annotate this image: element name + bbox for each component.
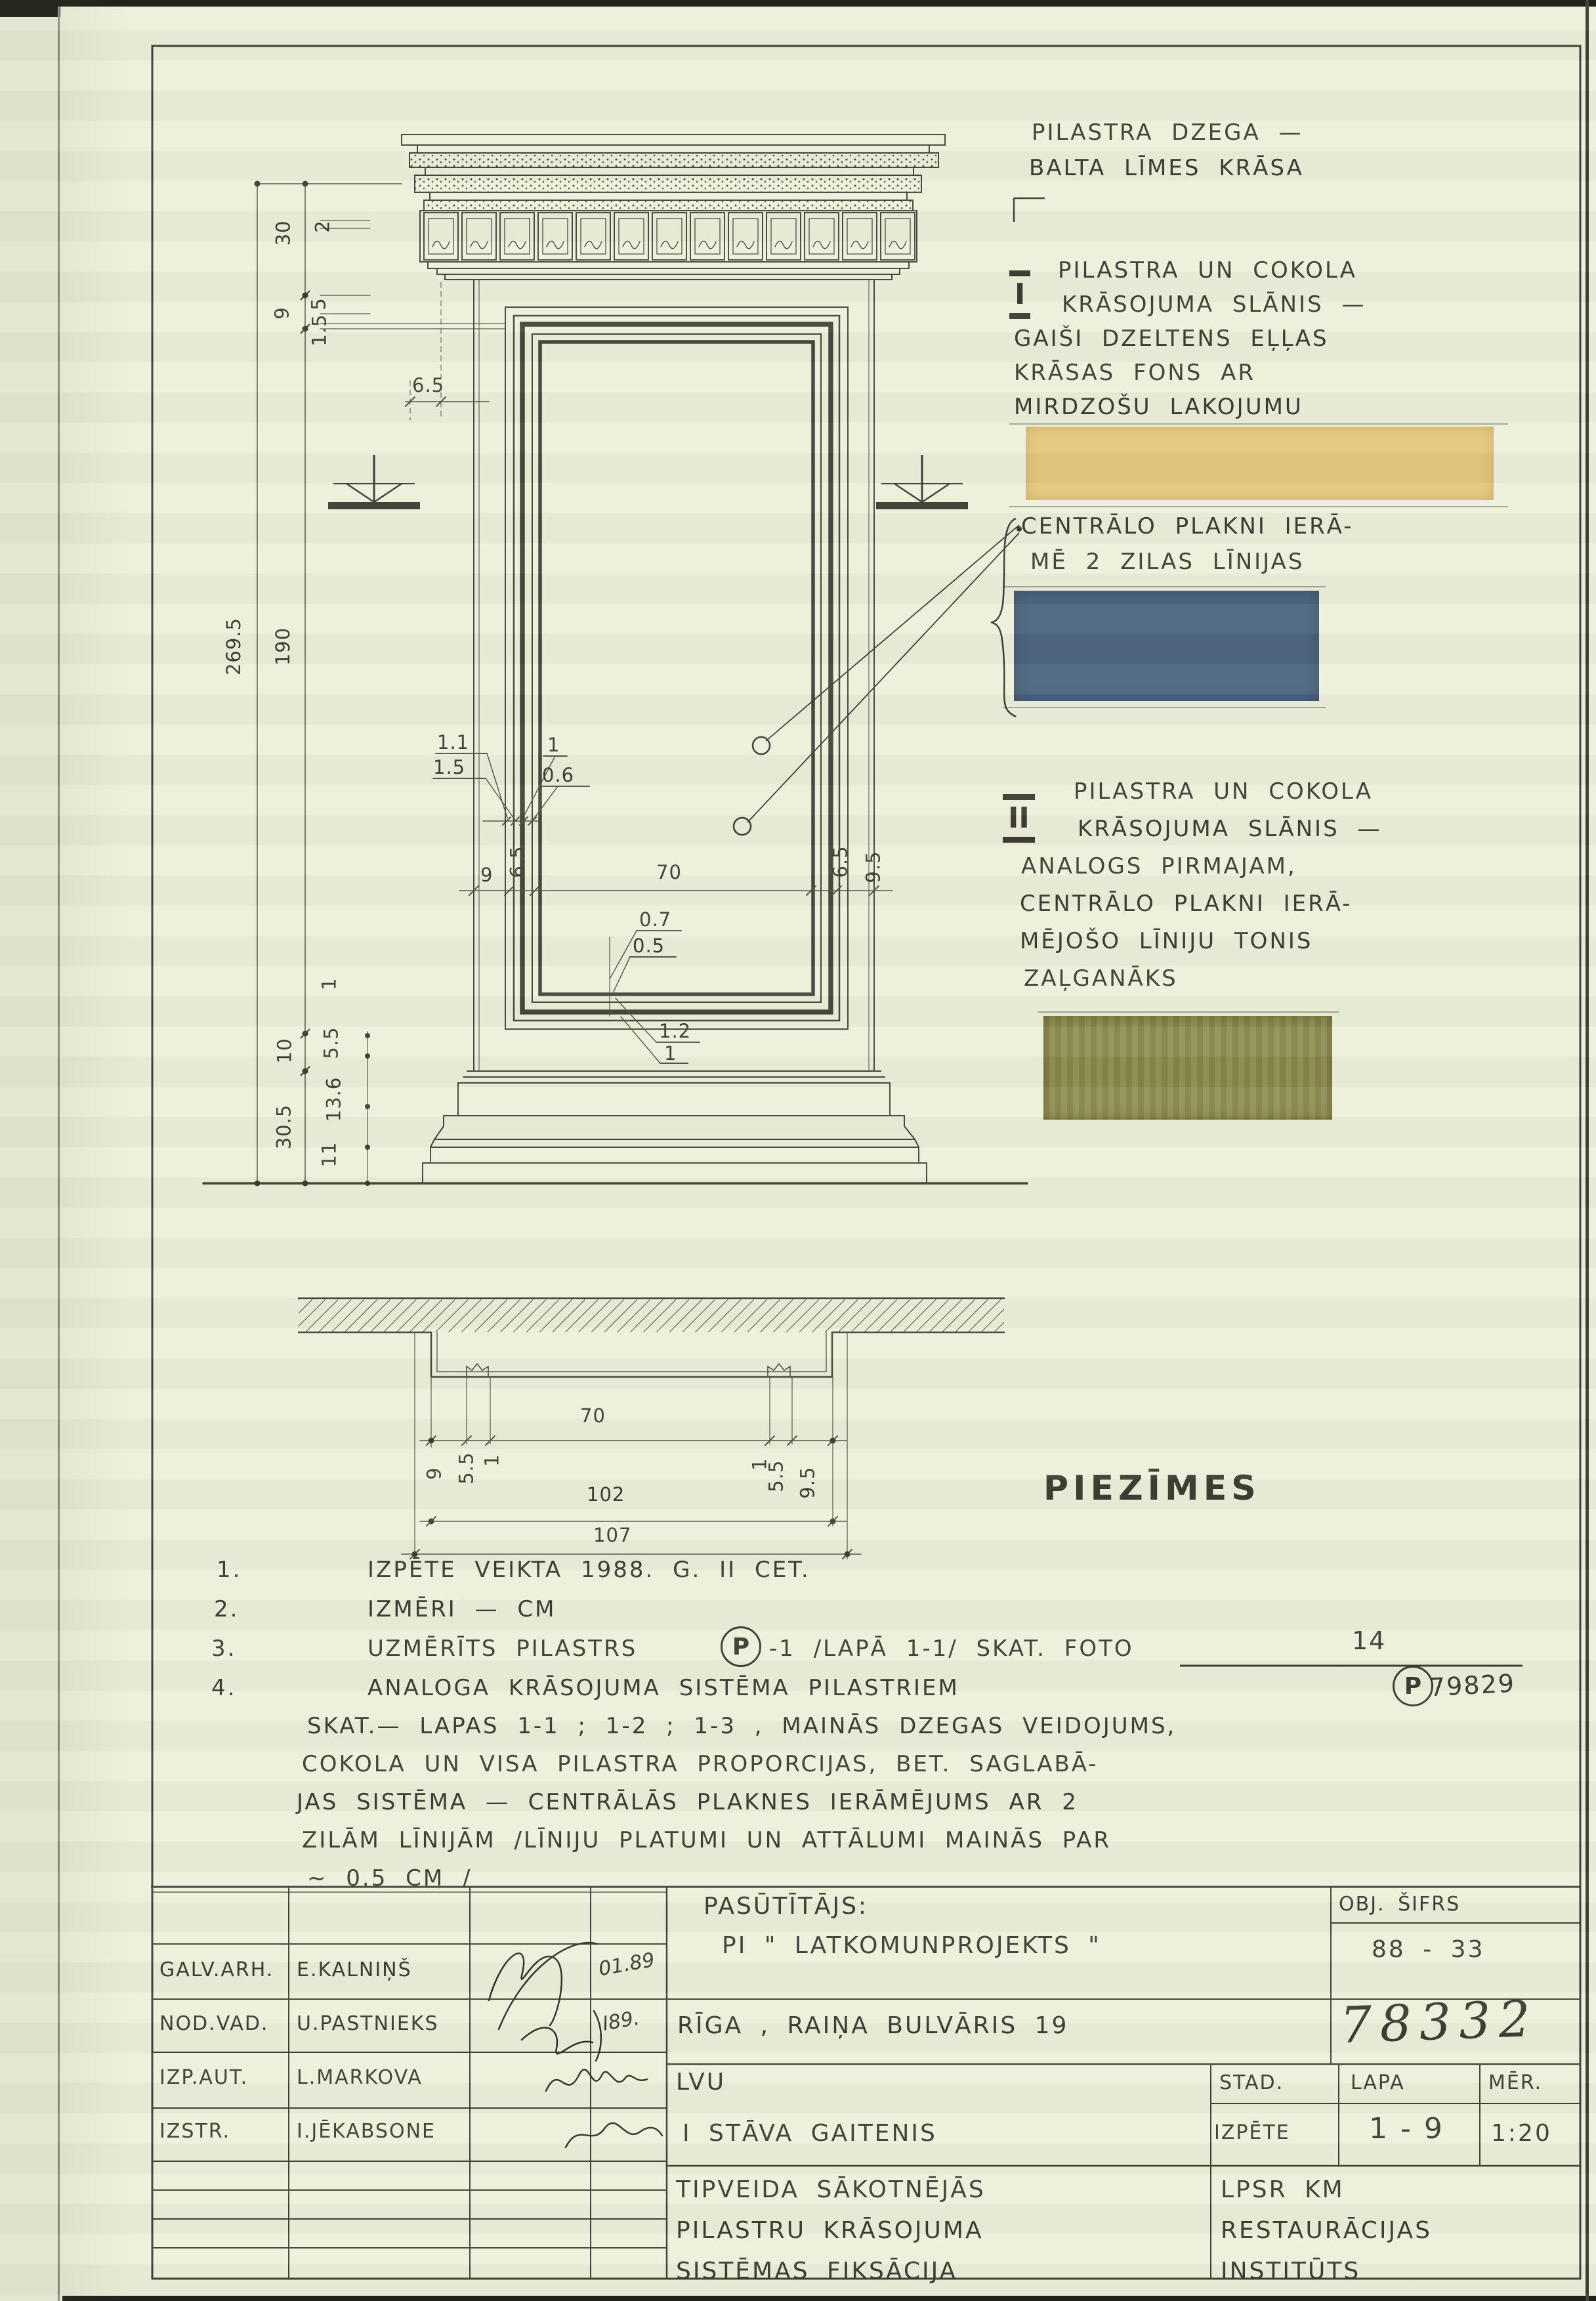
tb-role-izpaut: IZP.AUT. (159, 2066, 248, 2089)
note3-text-b: -1 /LAPĀ 1-1/ SKAT. FOTO (769, 1636, 1134, 1662)
dim-0-6: 0.6 (542, 764, 574, 786)
note4-number: 4. (211, 1675, 236, 1701)
note3-number: 3. (211, 1636, 236, 1662)
layer2-line6: ZAĻGANĀKS (1024, 965, 1178, 992)
note4-line1: ANALOGA KRĀSOJUMA SISTĒMA PILASTRIEM (367, 1675, 959, 1701)
legend-marks (1003, 424, 1508, 1012)
layer2-line5: MĒJOŠO LĪNIJU TONIS (1020, 928, 1312, 954)
central-note-line2: MĒ 2 ZILAS LĪNIJAS (1030, 549, 1304, 575)
tb-role-galvarh: GALV.ARH. (159, 1958, 274, 1981)
pilaster-elevation (203, 135, 1027, 1183)
tb-name-jekabsone: I.JĒKABSONE (297, 2120, 436, 2143)
note4-line5: ZILĀM LĪNIJĀM /LĪNIJU PLATUMI UN ATTĀLUM… (302, 1827, 1111, 1853)
layer1-line2: KRĀSOJUMA SLĀNIS — (1062, 291, 1366, 318)
layer2-line1: PILASTRA UN COKOLA (1074, 778, 1373, 805)
tb-role-izstr: IZSTR. (159, 2120, 230, 2143)
note3-photo-number: 14 (1352, 1626, 1386, 1655)
dim-2: 2 (312, 220, 334, 232)
tb-sheet-value: 1 - 9 (1369, 2112, 1444, 2145)
dim-w-6-5-left: 6.5 (507, 845, 529, 877)
layer2-line2: KRĀSOJUMA SLĀNIS — (1078, 816, 1381, 842)
dim-0-7: 0.7 (639, 908, 671, 931)
dim-total-269-5: 269.5 (222, 618, 245, 675)
tb-role-nodvad: NOD.VAD. (159, 2012, 268, 2035)
note2-number: 2. (214, 1596, 239, 1622)
dim-9-top: 9 (271, 306, 293, 319)
dim-base-13-6: 13.6 (322, 1077, 345, 1122)
datum-symbols (328, 455, 968, 509)
note3-stamp-number: 79829 (1429, 1669, 1516, 1702)
note4-line2: SKAT.— LAPAS 1-1 ; 1-2 ; 1-3 , MAINĀS DZ… (307, 1713, 1176, 1739)
dim-6-5-top: 6.5 (412, 374, 444, 396)
tb-client-label: PASŪTĪTĀJS: (703, 1893, 868, 1920)
tb-archive-stamp-number: 78332 (1339, 1989, 1540, 2054)
tb-org-line3: INSTITŪTS (1221, 2258, 1360, 2285)
note3-pilaster-mark-circle: P (721, 1626, 761, 1667)
layer2-line4: CENTRĀLO PLAKNI IERĀ- (1020, 891, 1353, 917)
dim-1-5-top: 1.5 (308, 314, 331, 346)
tb-name-markova: L.MARKOVA (297, 2066, 423, 2089)
tb-scale-label: MĒR. (1488, 2071, 1542, 2094)
layer2-numeral: II (1003, 794, 1035, 843)
dim-plan-9: 9 (423, 1467, 446, 1479)
tb-org-line2: RESTAURĀCIJAS (1221, 2217, 1432, 2244)
tb-address: RĪGA , RAIŅA BULVĀRIS 19 (677, 2012, 1068, 2039)
layer2-line3: ANALOGS PIRMAJAM, (1021, 853, 1297, 879)
dim-1-5-mid: 1.5 (433, 756, 465, 778)
tb-objcode-label: OBJ. ŠIFRS (1339, 1893, 1460, 1916)
layer1-line3: GAIŠI DZELTENS EĻĻAS (1014, 326, 1329, 352)
dim-plan-9-5: 9.5 (797, 1466, 819, 1498)
dim-1-bottom: 1 (664, 1042, 677, 1065)
dim-1-1: 1.1 (437, 731, 469, 753)
tb-client-name: PI " LATKOMUNPROJEKTS " (722, 1932, 1101, 1959)
dim-w-9: 9 (480, 864, 493, 886)
dim-base-30-5: 30.5 (272, 1105, 295, 1150)
tb-scale-value: 1:20 (1491, 2120, 1552, 2147)
dim-plan-107: 107 (593, 1524, 631, 1546)
dim-base-10: 10 (273, 1038, 295, 1064)
layer1-line4: KRĀSAS FONS AR (1014, 360, 1255, 386)
note1-number: 1. (217, 1557, 241, 1583)
tb-object-sub: I STĀVA GAITENIS (682, 2120, 937, 2147)
plan-section (299, 1298, 1004, 1377)
tb-name-pastnieks: U.PASTNIEKS (297, 2012, 439, 2035)
dim-w-70: 70 (656, 861, 682, 883)
dim-1-2: 1.2 (659, 1020, 691, 1042)
layer1-line1: PILASTRA UN COKOLA (1058, 257, 1357, 284)
dim-shaft-190: 190 (272, 627, 294, 665)
tb-org-line1: LPSR KM (1221, 2176, 1345, 2203)
central-note-line1: CENTRĀLO PLAKNI IERĀ- (1021, 513, 1354, 539)
dim-1-mid: 1 (547, 734, 560, 756)
tb-doc-title-line3: SISTĒMAS FIKSĀCIJA (676, 2258, 957, 2285)
dim-0-5: 0.5 (633, 935, 665, 957)
note-dzega-line1: PILASTRA DZEGA — (1032, 119, 1303, 146)
tb-sheet-label: LAPA (1351, 2071, 1405, 2094)
dim-w-9-5: 9.5 (862, 851, 885, 883)
dim-plan-1-left: 1 (481, 1454, 503, 1466)
dim-plan-70: 70 (580, 1404, 606, 1427)
layer1-line5: MIRDZOŠU LAKOJUMU (1014, 394, 1303, 420)
dim-plan-5-5-left: 5.5 (455, 1452, 478, 1484)
note4-pilaster-mark-circle: P (1393, 1666, 1433, 1706)
tb-stage-label: STAD. (1219, 2071, 1284, 2094)
scanned-drawing-sheet: PILASTRA DZEGA — BALTA LĪMES KRĀSA I PIL… (0, 0, 1596, 2301)
note3-text-a: UZMĒRĪTS PILASTRS (367, 1636, 637, 1662)
tb-doc-title-line2: PILASTRU KRĀSOJUMA (676, 2217, 984, 2244)
tb-objcode-value: 88 - 33 (1372, 1936, 1485, 1963)
tb-doc-title-line1: TIPVEIDA SĀKOTNĒJĀS (676, 2176, 986, 2203)
notes-title: PIEZĪMES (1043, 1469, 1261, 1508)
dim-base-5-5: 5.5 (320, 1026, 343, 1059)
note4-line6: ~ 0.5 CM / (307, 1865, 472, 1891)
dim-base-11: 11 (318, 1142, 340, 1168)
dim-5: 5 (308, 297, 330, 310)
dim-plan-5-5-right: 5.5 (765, 1460, 787, 1492)
note2-text: IZMĒRI — CM (367, 1596, 556, 1622)
dim-30: 30 (272, 221, 294, 246)
note1-text: IZPĒTE VEIKTA 1988. G. II CET. (367, 1557, 810, 1583)
note4-line4: JAS SISTĒMA — CENTRĀLĀS PLAKNES IERĀMĒJU… (297, 1789, 1078, 1815)
note-dzega-line2: BALTA LĪMES KRĀSA (1029, 155, 1304, 181)
dim-plan-102: 102 (587, 1483, 625, 1506)
note4-line3: COKOLA UN VISA PILASTRA PROPORCIJAS, BET… (302, 1751, 1099, 1777)
dim-w-6-5-right: 6.5 (829, 845, 852, 877)
dim-base-1: 1 (318, 977, 341, 990)
tb-name-kalnins: E.KALNIŅŠ (297, 1958, 412, 1981)
tb-object: LVU (676, 2069, 726, 2096)
layer1-numeral: I (1009, 270, 1030, 319)
tb-stage-value: IZPĒTE (1214, 2121, 1290, 2144)
